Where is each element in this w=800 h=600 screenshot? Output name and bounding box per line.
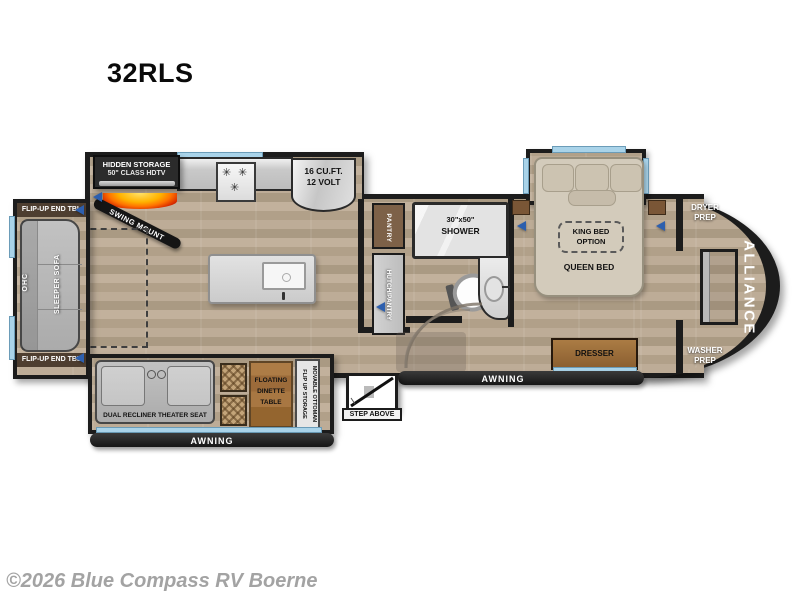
pantry-label: PANTRY: [384, 196, 392, 260]
speaker-icon: [517, 221, 526, 231]
dashed-slide-path: [80, 228, 148, 348]
step-box: [346, 373, 398, 411]
alliance-brand-text: ALLIANCE: [742, 231, 758, 346]
faucet-icon: [282, 292, 285, 300]
theater-seat-label: DUAL RECLINER THEATER SEAT: [96, 412, 214, 420]
pillow: [610, 164, 642, 192]
dinette-label-line1: FLOATING: [251, 375, 291, 386]
bolster-pillow: [568, 190, 616, 206]
closet: [700, 249, 738, 325]
speaker-icon: [93, 192, 102, 202]
awning-bar-right: AWNING: [398, 371, 644, 385]
hutch-pantry: HUTCH/PANTRY: [372, 253, 405, 335]
ottoman: [220, 395, 247, 426]
faucet-icon: [502, 286, 510, 288]
ohc-label: OHC: [22, 262, 30, 302]
window: [9, 216, 15, 258]
shower-label-line2: SHOWER: [415, 226, 506, 236]
closet-door: [703, 252, 710, 322]
dresser: DRESSER: [551, 338, 638, 370]
hutch-pantry-label: HUTCH/PANTRY: [384, 255, 392, 335]
queen-bed-label: QUEEN BED: [536, 262, 642, 272]
copyright-text: ©2026 Blue Compass RV Boerne: [6, 570, 318, 593]
awning-label-right: AWNING: [468, 374, 538, 385]
bed: KING BED OPTION QUEEN BED: [534, 157, 644, 297]
washer-prep-line2: PREP: [682, 356, 728, 366]
dresser-label: DRESSER: [553, 349, 636, 359]
burner-icon: ✳: [230, 181, 239, 194]
dinette-label-line2: DINETTE: [251, 386, 291, 397]
tv-cabinet: HIDDEN STORAGE 50" CLASS HDTV: [93, 155, 180, 189]
tv-label-line1: HIDDEN STORAGE: [95, 160, 178, 169]
dryer-prep-line1: DRYER: [684, 203, 726, 213]
tv-shelf: [99, 181, 175, 186]
refrigerator: 16 CU.FT. 12 VOLT: [291, 158, 356, 212]
ottoman: [220, 363, 247, 392]
floorplan-page: 32RLS ALLIANCE ✳ ✳ ✳ 16 CU.FT. 12 VOLT H…: [0, 0, 800, 600]
kitchen-island: [208, 254, 316, 304]
burner-icon: ✳: [222, 166, 231, 179]
dryer-prep-line2: PREP: [684, 213, 726, 223]
awning-label-left: AWNING: [90, 436, 334, 447]
page-title: 32RLS: [107, 58, 194, 89]
fridge-label-line1: 16 CU.FT.: [293, 166, 354, 176]
movable-ottoman-label-line1: MOVABLE OTTOMAN: [308, 361, 318, 427]
cupholder-icon: [157, 370, 166, 379]
king-bed-label-line1: KING BED: [560, 227, 622, 236]
fridge-label-line2: 12 VOLT: [293, 177, 354, 187]
shower: 30"x50" SHOWER: [412, 202, 509, 259]
burner-icon: ✳: [238, 166, 247, 179]
movable-ottoman-label-line2: FLIP UP STORAGE: [298, 361, 308, 427]
washer-prep-line1: WASHER: [682, 346, 728, 356]
window: [9, 316, 15, 360]
step-diagonal-icon: [349, 376, 395, 408]
window: [552, 146, 626, 153]
shower-label-line1: 30"x50": [415, 215, 506, 224]
tv-label-line2: 50" CLASS HDTV: [95, 170, 178, 178]
king-bed-option-box: KING BED OPTION: [558, 221, 624, 253]
nightstand: [648, 200, 666, 215]
speaker-icon: [656, 221, 665, 231]
sleeper-sofa-label: SLEEPER SOFA: [54, 244, 62, 324]
recliner-seat: [101, 366, 145, 406]
awning-bar-left: AWNING: [90, 433, 334, 447]
washer-prep-label: WASHER PREP: [682, 346, 728, 365]
vanity-sink: [484, 276, 504, 302]
dryer-prep-label: DRYER PREP: [684, 203, 726, 222]
wall: [358, 199, 364, 333]
nightstand: [512, 200, 530, 215]
window: [523, 158, 529, 194]
entry-door-arc: [402, 300, 486, 372]
pillow: [575, 164, 609, 192]
speaker-icon: [75, 353, 84, 363]
speaker-icon: [376, 302, 385, 312]
speaker-icon: [75, 205, 84, 215]
sink: [262, 262, 306, 290]
pillow: [542, 164, 574, 192]
dinette-table: FLOATING DINETTE TABLE: [249, 361, 293, 428]
recliner-seat: [167, 366, 211, 406]
pantry: PANTRY: [372, 203, 405, 249]
step-label-box: STEP ABOVE: [342, 408, 402, 421]
sink-drain-icon: [282, 273, 291, 282]
cooktop: ✳ ✳ ✳: [216, 162, 256, 202]
dinette-label-line3: TABLE: [251, 397, 291, 408]
cupholder-icon: [147, 370, 156, 379]
wall: [676, 199, 683, 251]
step-above-label: STEP ABOVE: [344, 411, 400, 419]
king-bed-label-line2: OPTION: [560, 237, 622, 246]
movable-ottoman: MOVABLE OTTOMAN FLIP UP STORAGE: [295, 359, 320, 429]
